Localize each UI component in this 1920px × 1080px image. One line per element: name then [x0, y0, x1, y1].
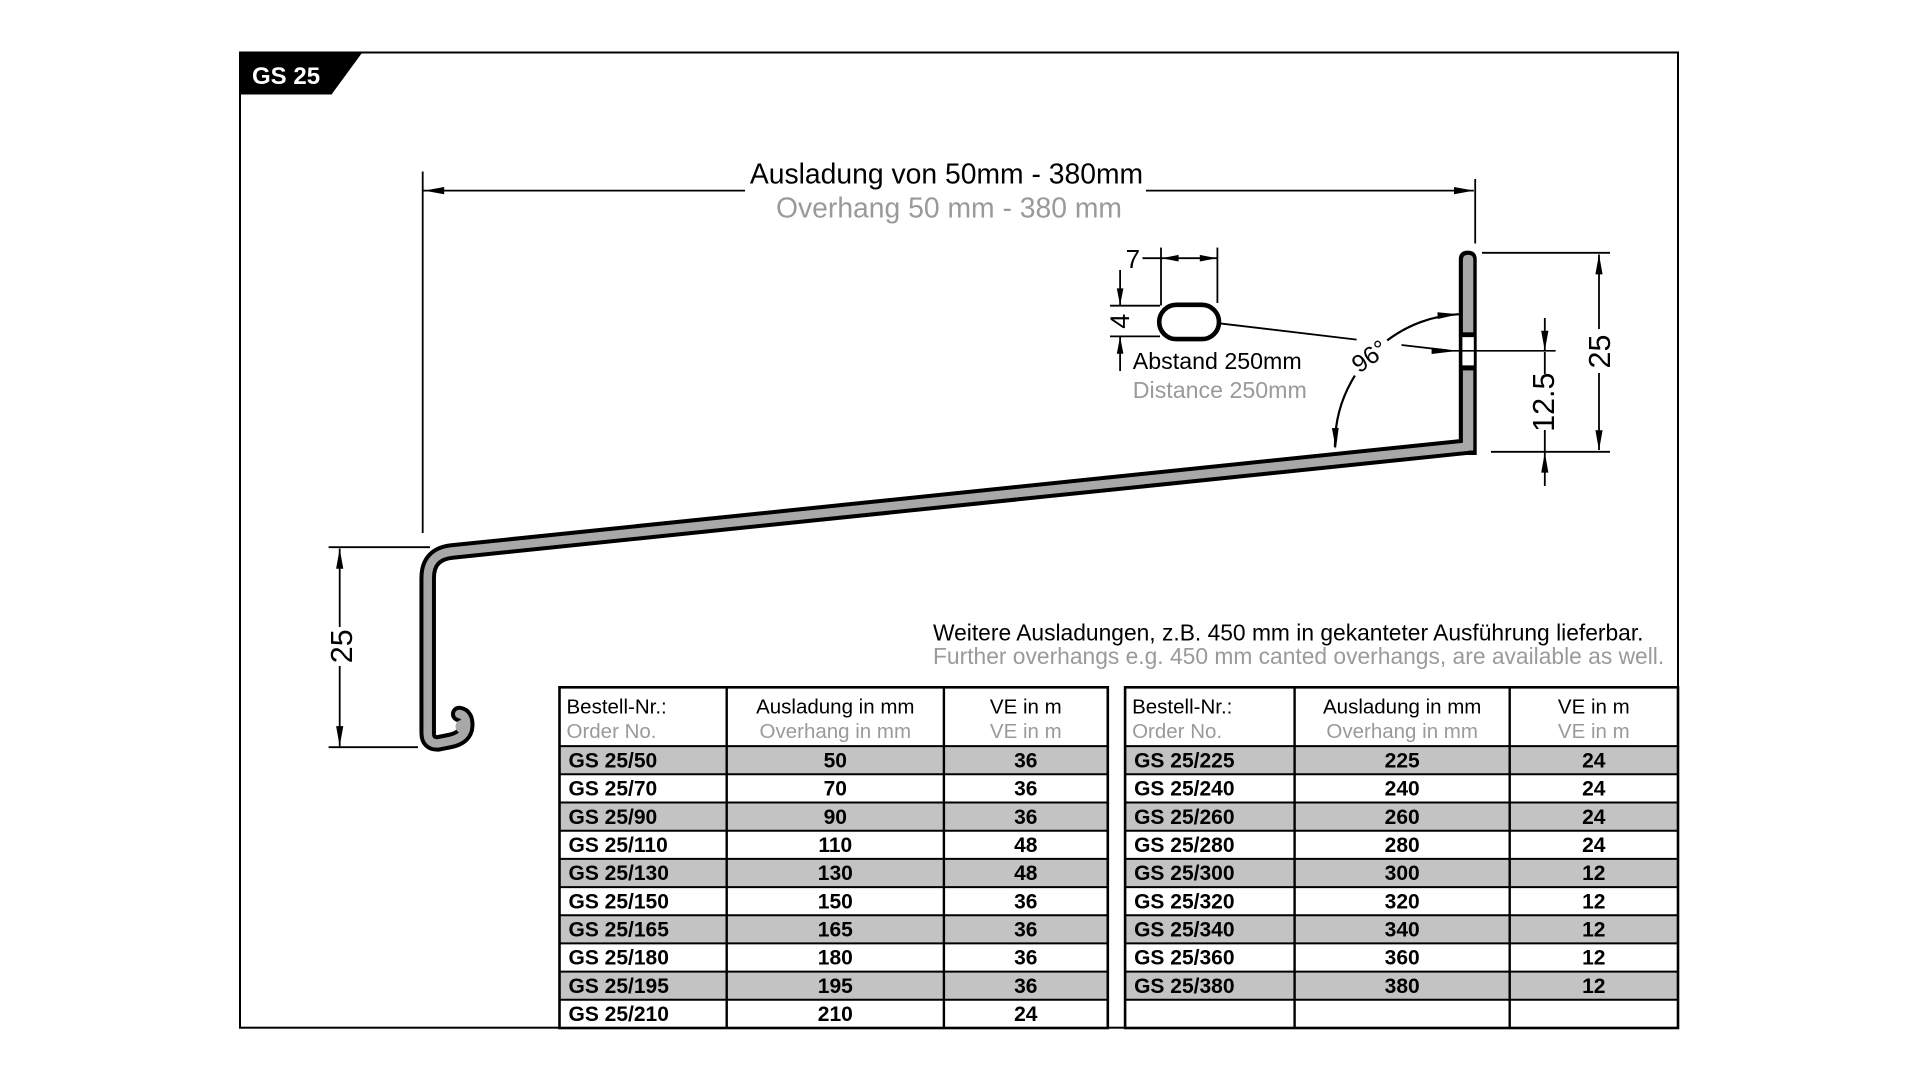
svg-text:320: 320 — [1385, 890, 1420, 913]
svg-text:240: 240 — [1385, 778, 1420, 801]
svg-text:380: 380 — [1385, 975, 1420, 998]
svg-text:7: 7 — [1126, 244, 1140, 274]
svg-text:VE in m: VE in m — [990, 695, 1062, 718]
svg-text:25: 25 — [1583, 335, 1617, 369]
svg-text:GS 25/165: GS 25/165 — [569, 919, 670, 942]
svg-text:Order No.: Order No. — [1132, 720, 1222, 743]
svg-text:GS 25: GS 25 — [252, 63, 320, 90]
svg-text:GS 25/130: GS 25/130 — [569, 862, 669, 885]
svg-text:225: 225 — [1385, 749, 1420, 772]
svg-text:195: 195 — [818, 975, 853, 998]
svg-text:GS 25/260: GS 25/260 — [1134, 806, 1234, 829]
svg-text:36: 36 — [1014, 890, 1037, 913]
svg-text:12: 12 — [1582, 890, 1605, 913]
svg-text:110: 110 — [818, 834, 852, 857]
svg-text:Overhang in mm: Overhang in mm — [1326, 720, 1478, 743]
svg-text:180: 180 — [818, 947, 853, 970]
svg-text:GS 25/280: GS 25/280 — [1134, 834, 1234, 857]
svg-text:Order No.: Order No. — [567, 720, 657, 743]
svg-text:GS 25/150: GS 25/150 — [569, 890, 669, 913]
svg-text:280: 280 — [1385, 834, 1420, 857]
svg-text:Weitere Ausladungen, z.B. 450: Weitere Ausladungen, z.B. 450 mm in geka… — [933, 620, 1644, 646]
svg-text:12: 12 — [1582, 975, 1605, 998]
svg-text:24: 24 — [1582, 749, 1606, 772]
svg-text:Further overhangs e.g. 450 mm: Further overhangs e.g. 450 mm canted ove… — [933, 643, 1664, 669]
svg-text:GS 25/320: GS 25/320 — [1134, 890, 1234, 913]
svg-text:GS 25/340: GS 25/340 — [1134, 919, 1234, 942]
svg-text:260: 260 — [1385, 806, 1420, 829]
svg-text:GS 25/70: GS 25/70 — [569, 778, 658, 801]
svg-text:12: 12 — [1582, 947, 1605, 970]
svg-text:Abstand 250mm: Abstand 250mm — [1133, 348, 1302, 374]
svg-text:GS 25/210: GS 25/210 — [569, 1003, 669, 1026]
svg-text:Overhang in mm: Overhang in mm — [760, 720, 912, 743]
svg-text:VE in m: VE in m — [1558, 720, 1630, 743]
svg-text:300: 300 — [1385, 862, 1420, 885]
svg-text:GS 25/225: GS 25/225 — [1134, 749, 1235, 772]
svg-text:210: 210 — [818, 1003, 853, 1026]
svg-text:36: 36 — [1014, 778, 1037, 801]
svg-text:130: 130 — [818, 862, 853, 885]
svg-text:12.5: 12.5 — [1527, 373, 1561, 432]
svg-text:Overhang 50 mm - 380 mm: Overhang 50 mm - 380 mm — [776, 192, 1122, 224]
svg-text:GS 25/300: GS 25/300 — [1134, 862, 1234, 885]
svg-text:VE in m: VE in m — [1558, 695, 1630, 718]
svg-text:24: 24 — [1014, 1003, 1038, 1026]
svg-text:Ausladung in mm: Ausladung in mm — [1323, 695, 1481, 718]
svg-text:12: 12 — [1582, 862, 1605, 885]
svg-text:50: 50 — [824, 749, 847, 772]
svg-text:150: 150 — [818, 890, 853, 913]
svg-text:48: 48 — [1014, 834, 1038, 857]
svg-text:24: 24 — [1582, 806, 1606, 829]
svg-text:340: 340 — [1385, 919, 1420, 942]
svg-text:70: 70 — [824, 778, 847, 801]
svg-text:GS 25/360: GS 25/360 — [1134, 947, 1234, 970]
svg-text:36: 36 — [1014, 806, 1037, 829]
svg-text:360: 360 — [1385, 947, 1420, 970]
svg-text:GS 25/195: GS 25/195 — [569, 975, 670, 998]
svg-text:90: 90 — [824, 806, 847, 829]
svg-text:165: 165 — [818, 919, 853, 942]
svg-text:VE in m: VE in m — [990, 720, 1062, 743]
svg-text:36: 36 — [1014, 947, 1037, 970]
svg-text:36: 36 — [1014, 975, 1037, 998]
svg-text:Bestell-Nr.:: Bestell-Nr.: — [567, 695, 667, 718]
svg-text:Ausladung in mm: Ausladung in mm — [756, 695, 914, 718]
svg-text:36: 36 — [1014, 749, 1037, 772]
svg-text:GS 25/380: GS 25/380 — [1134, 975, 1234, 998]
svg-text:GS 25/50: GS 25/50 — [569, 749, 658, 772]
svg-text:Bestell-Nr.:: Bestell-Nr.: — [1132, 695, 1232, 718]
svg-text:25: 25 — [325, 629, 359, 663]
svg-text:24: 24 — [1582, 834, 1606, 857]
svg-text:GS 25/180: GS 25/180 — [569, 947, 669, 970]
svg-text:GS 25/240: GS 25/240 — [1134, 778, 1234, 801]
svg-text:4: 4 — [1105, 314, 1135, 329]
svg-text:48: 48 — [1014, 862, 1038, 885]
svg-text:GS 25/90: GS 25/90 — [569, 806, 658, 829]
svg-text:Distance 250mm: Distance 250mm — [1133, 377, 1307, 403]
svg-text:24: 24 — [1582, 778, 1606, 801]
svg-text:36: 36 — [1014, 919, 1037, 942]
svg-text:12: 12 — [1582, 919, 1605, 942]
svg-text:GS 25/110: GS 25/110 — [569, 834, 668, 857]
svg-text:Ausladung von 50mm - 380mm: Ausladung von 50mm - 380mm — [750, 158, 1143, 190]
